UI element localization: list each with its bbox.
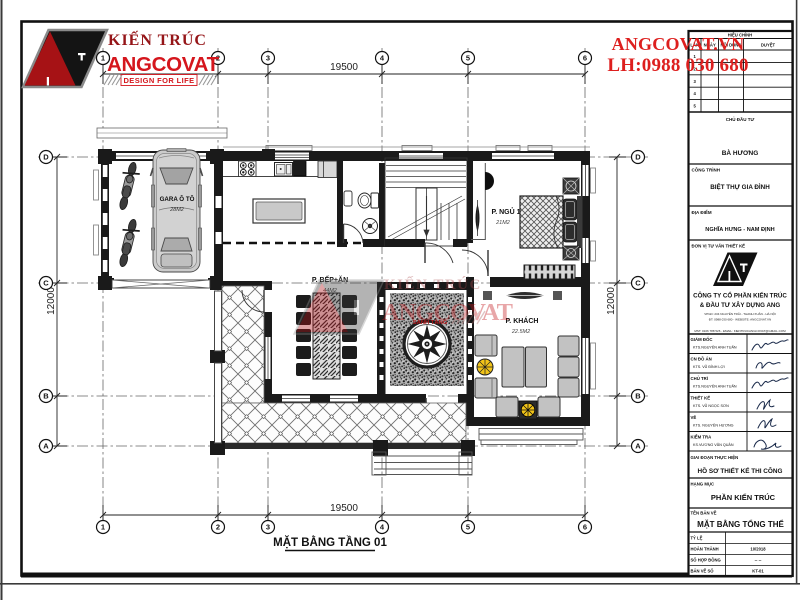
svg-text:D: D (635, 153, 641, 162)
svg-text:ANGCOVAT: ANGCOVAT (382, 299, 513, 326)
svg-text:3: 3 (266, 54, 270, 63)
svg-text:BÀ HƯƠNG: BÀ HƯƠNG (722, 148, 759, 157)
svg-text:10/2018: 10/2018 (750, 546, 766, 551)
svg-text:KTS. VŨ ĐÌNH LỢI: KTS. VŨ ĐÌNH LỢI (693, 364, 725, 369)
svg-text:VẼ: VẼ (691, 415, 697, 420)
svg-text:THIẾT KẾ: THIẾT KẾ (691, 396, 711, 401)
svg-text:3: 3 (266, 523, 270, 532)
svg-text:GARA Ô TÔ: GARA Ô TÔ (160, 195, 195, 203)
svg-text:A: A (635, 442, 641, 451)
svg-text:KS.VƯƠNG VĂN QUÂN: KS.VƯƠNG VĂN QUÂN (693, 442, 734, 447)
svg-text:C: C (43, 279, 49, 288)
svg-text:1: 1 (101, 523, 105, 532)
svg-text:KT-01: KT-01 (752, 568, 764, 573)
svg-text:KTS.NGUYỄN ANH TUẤN: KTS.NGUYỄN ANH TUẤN (693, 384, 737, 389)
svg-text:CN ĐỒ ÁN: CN ĐỒ ÁN (691, 357, 712, 362)
svg-text:MST: 0106 788 526 - EMAIL: KIE: MST: 0106 788 526 - EMAIL: KIENTRUCANGCO… (694, 329, 786, 333)
svg-text:A: A (43, 442, 49, 451)
svg-text:-- --: -- -- (755, 557, 762, 562)
svg-text:TÊN BẢN VẼ: TÊN BẢN VẼ (691, 511, 717, 516)
svg-text:ĐỊA ĐIỂM: ĐỊA ĐIỂM (692, 209, 712, 215)
svg-text:B: B (43, 392, 49, 401)
svg-text:CHỦ TRÌ: CHỦ TRÌ (691, 376, 708, 381)
svg-text:HOÀN THÀNH: HOÀN THÀNH (691, 546, 719, 551)
svg-text:ANGCOVAT.VN: ANGCOVAT.VN (612, 34, 745, 54)
svg-text:KTS. VŨ NGỌC SƠN: KTS. VŨ NGỌC SƠN (693, 403, 729, 408)
svg-text:TỶ LỆ: TỶ LỆ (691, 535, 703, 540)
svg-text:D: D (43, 153, 49, 162)
svg-text:ĐT: 0988 030 680 - WEBSITE: AN: ĐT: 0988 030 680 - WEBSITE: ANGCOVAT.VN (709, 318, 771, 322)
svg-text:P. NGỦ 1: P. NGỦ 1 (491, 207, 520, 216)
svg-text:MẶT BẰNG TẦNG 01: MẶT BẰNG TẦNG 01 (273, 536, 387, 549)
svg-text:CÔNG TRÌNH: CÔNG TRÌNH (692, 166, 721, 173)
svg-text:KTS. NGUYỄN HƯƠNG: KTS. NGUYỄN HƯƠNG (693, 423, 734, 428)
svg-text:1: 1 (101, 54, 105, 63)
svg-text:5: 5 (466, 54, 470, 63)
svg-text:VPGD: 234 NGUYỄN TRÃI - THANH: VPGD: 234 NGUYỄN TRÃI - THANH XUÂN - HÀ … (704, 311, 776, 316)
svg-text:NGHĨA HƯNG - NAM ĐỊNH: NGHĨA HƯNG - NAM ĐỊNH (705, 226, 774, 233)
svg-text:KIẾN TRÚC: KIẾN TRÚC (384, 276, 482, 293)
svg-text:ANGCOVAT: ANGCOVAT (107, 53, 220, 76)
svg-text:DUYỆT: DUYỆT (761, 43, 776, 48)
svg-text:28M2: 28M2 (169, 207, 184, 213)
svg-text:DESIGN FOR LIFE: DESIGN FOR LIFE (123, 76, 194, 85)
svg-text:CHỦ ĐẦU TƯ: CHỦ ĐẦU TƯ (726, 116, 755, 122)
svg-text:LH:0988 030 680: LH:0988 030 680 (607, 55, 748, 76)
svg-text:ĐƠN VỊ TƯ VẤN THIẾT KẾ: ĐƠN VỊ TƯ VẤN THIẾT KẾ (692, 244, 746, 249)
svg-text:& ĐẦU TƯ XÂY DỰNG ANG: & ĐẦU TƯ XÂY DỰNG ANG (700, 302, 781, 309)
svg-text:SỐ HỢP ĐỒNG: SỐ HỢP ĐỒNG (691, 557, 721, 562)
svg-text:19500: 19500 (330, 62, 358, 73)
svg-text:BẢN VẼ SỐ: BẢN VẼ SỐ (691, 568, 715, 573)
svg-text:GIÁM ĐỐC: GIÁM ĐỐC (691, 337, 713, 342)
svg-text:KTS.NGUYỄN ANH TUẤN: KTS.NGUYỄN ANH TUẤN (693, 345, 737, 350)
svg-text:22.5M2: 22.5M2 (511, 329, 530, 335)
svg-text:12000: 12000 (46, 287, 57, 315)
svg-text:BIỆT THỰ GIA ĐÌNH: BIỆT THỰ GIA ĐÌNH (710, 182, 770, 191)
svg-text:MẶT BẰNG TỔNG THỂ: MẶT BẰNG TỔNG THỂ (697, 520, 784, 529)
svg-text:19500: 19500 (330, 503, 358, 514)
svg-text:21M2: 21M2 (495, 220, 510, 226)
svg-text:2: 2 (216, 523, 220, 532)
svg-text:5: 5 (466, 523, 470, 532)
svg-text:6: 6 (583, 54, 587, 63)
svg-text:C: C (635, 279, 641, 288)
svg-text:PHẦN KIẾN TRÚC: PHẦN KIẾN TRÚC (711, 492, 776, 502)
svg-text:12000: 12000 (606, 287, 617, 315)
svg-text:6: 6 (583, 523, 587, 532)
svg-text:KIẾN TRÚC: KIẾN TRÚC (108, 30, 207, 49)
svg-text:CÔNG TY CỔ PHẦN KIẾN TRÚC: CÔNG TY CỔ PHẦN KIẾN TRÚC (693, 292, 787, 300)
svg-text:GIAI ĐOẠN THỰC HIỆN: GIAI ĐOẠN THỰC HIỆN (691, 455, 739, 460)
svg-text:HẠNG MỤC: HẠNG MỤC (691, 482, 715, 487)
svg-text:B: B (635, 392, 641, 401)
svg-text:KIỂM TRA: KIỂM TRA (691, 435, 712, 440)
